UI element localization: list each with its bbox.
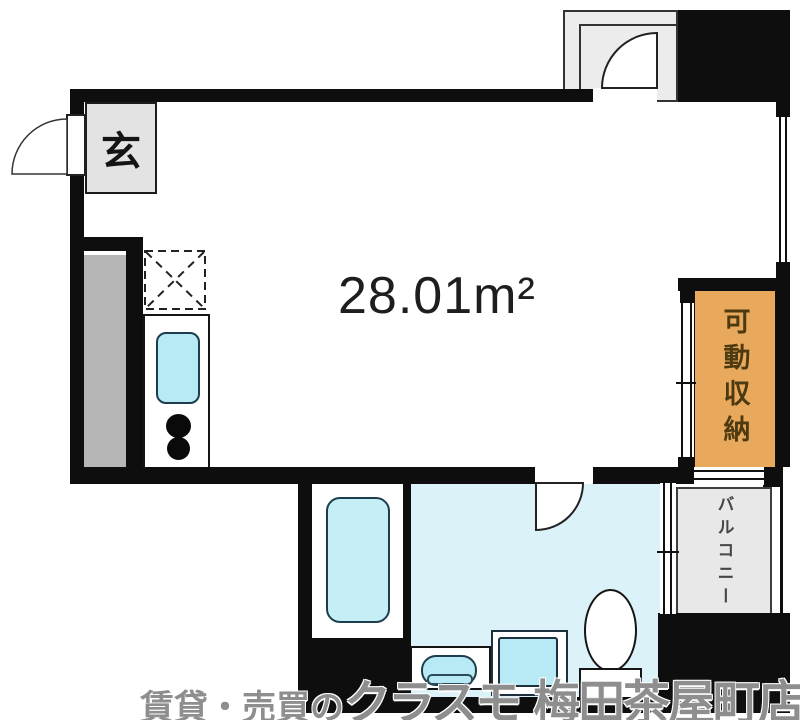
balcony-label: バルコニー [712, 495, 737, 610]
opening-line [694, 478, 764, 480]
balcony-railing [780, 487, 783, 617]
movable-storage-area: 可動収納 [693, 289, 777, 469]
stove-burner-icon [166, 414, 191, 438]
agency-watermark: 賃貸・売買のクラスモ梅田茶屋町店 [140, 664, 800, 720]
window-pane-line [785, 117, 787, 262]
storage-sliding-door-icon [680, 303, 694, 457]
opening-line [694, 470, 764, 472]
pipe-duct-area [84, 255, 126, 467]
wall-top [70, 89, 593, 102]
wall-kitchen-inner [126, 237, 143, 467]
balcony-area: バルコニー [676, 487, 772, 617]
room-area-label: 28.01m² [338, 266, 536, 326]
wall-storage-top [678, 278, 790, 291]
wall-storage-door-top [680, 291, 694, 303]
window-pane-line [663, 483, 665, 614]
entrance-area: 玄 [85, 102, 157, 194]
watermark-store: 梅田茶屋町店 [533, 676, 800, 720]
window-latch-line [657, 551, 679, 553]
stove-burner-icon [167, 437, 190, 460]
window-pane-line [779, 117, 781, 262]
wall-bottom-main [70, 467, 535, 484]
wall-right-storage [776, 291, 790, 467]
wall-bottom-main-right [593, 467, 678, 484]
refrigerator-space-hatch-cross [146, 252, 204, 308]
refrigerator-space-hatch [145, 251, 205, 309]
watermark-brand: クラスモ [344, 676, 519, 720]
unit-entry-door-opening [593, 88, 657, 103]
entrance-label: 玄 [101, 119, 141, 177]
bathtub-icon [326, 497, 390, 623]
wall-storage-balcony-corner [763, 467, 783, 487]
window-right-icon [776, 117, 790, 262]
window-balcony-icon [660, 483, 676, 614]
toilet-bowl-icon [584, 589, 637, 672]
storage-balcony-opening [694, 467, 764, 485]
wall-storage-door-bottom [678, 457, 694, 484]
storage-label: 可動収納 [716, 307, 755, 451]
sliding-door-line [681, 303, 683, 457]
sliding-door-line [690, 303, 692, 457]
kitchen-sink-icon [156, 332, 200, 404]
wall-top-right-block [678, 10, 790, 102]
window-pane-line [670, 483, 672, 614]
sliding-door-latch [676, 382, 696, 384]
bath-door-opening [535, 467, 592, 484]
entrance-door-leaf [66, 114, 86, 176]
watermark-prefix: 賃貸・売買の [140, 689, 344, 720]
floor-plan: 玄 バルコニー 可動収納 [0, 0, 800, 720]
wall-bath-separator [403, 483, 411, 640]
entrance-door-arc [12, 119, 67, 174]
